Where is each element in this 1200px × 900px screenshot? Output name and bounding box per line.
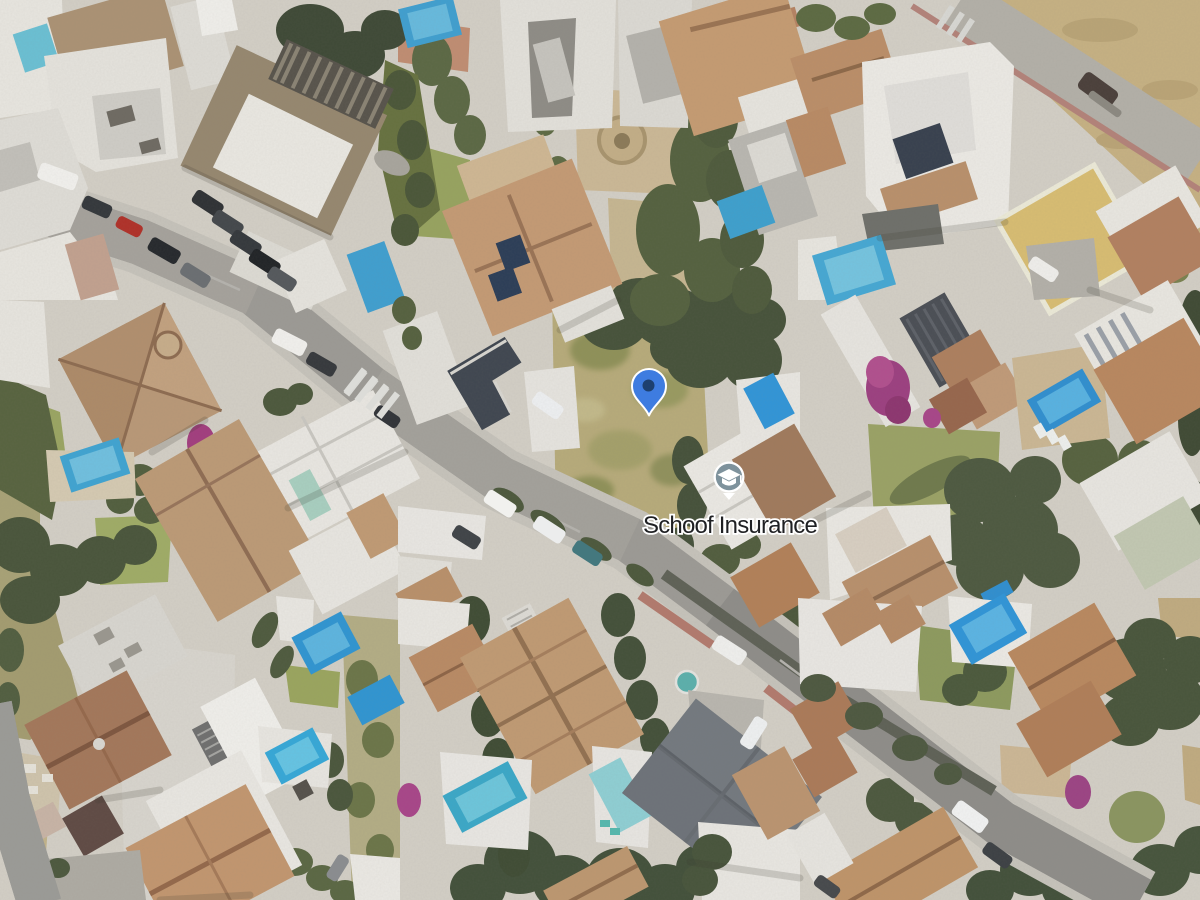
svg-text:Schoof Insurance: Schoof Insurance	[643, 512, 817, 539]
